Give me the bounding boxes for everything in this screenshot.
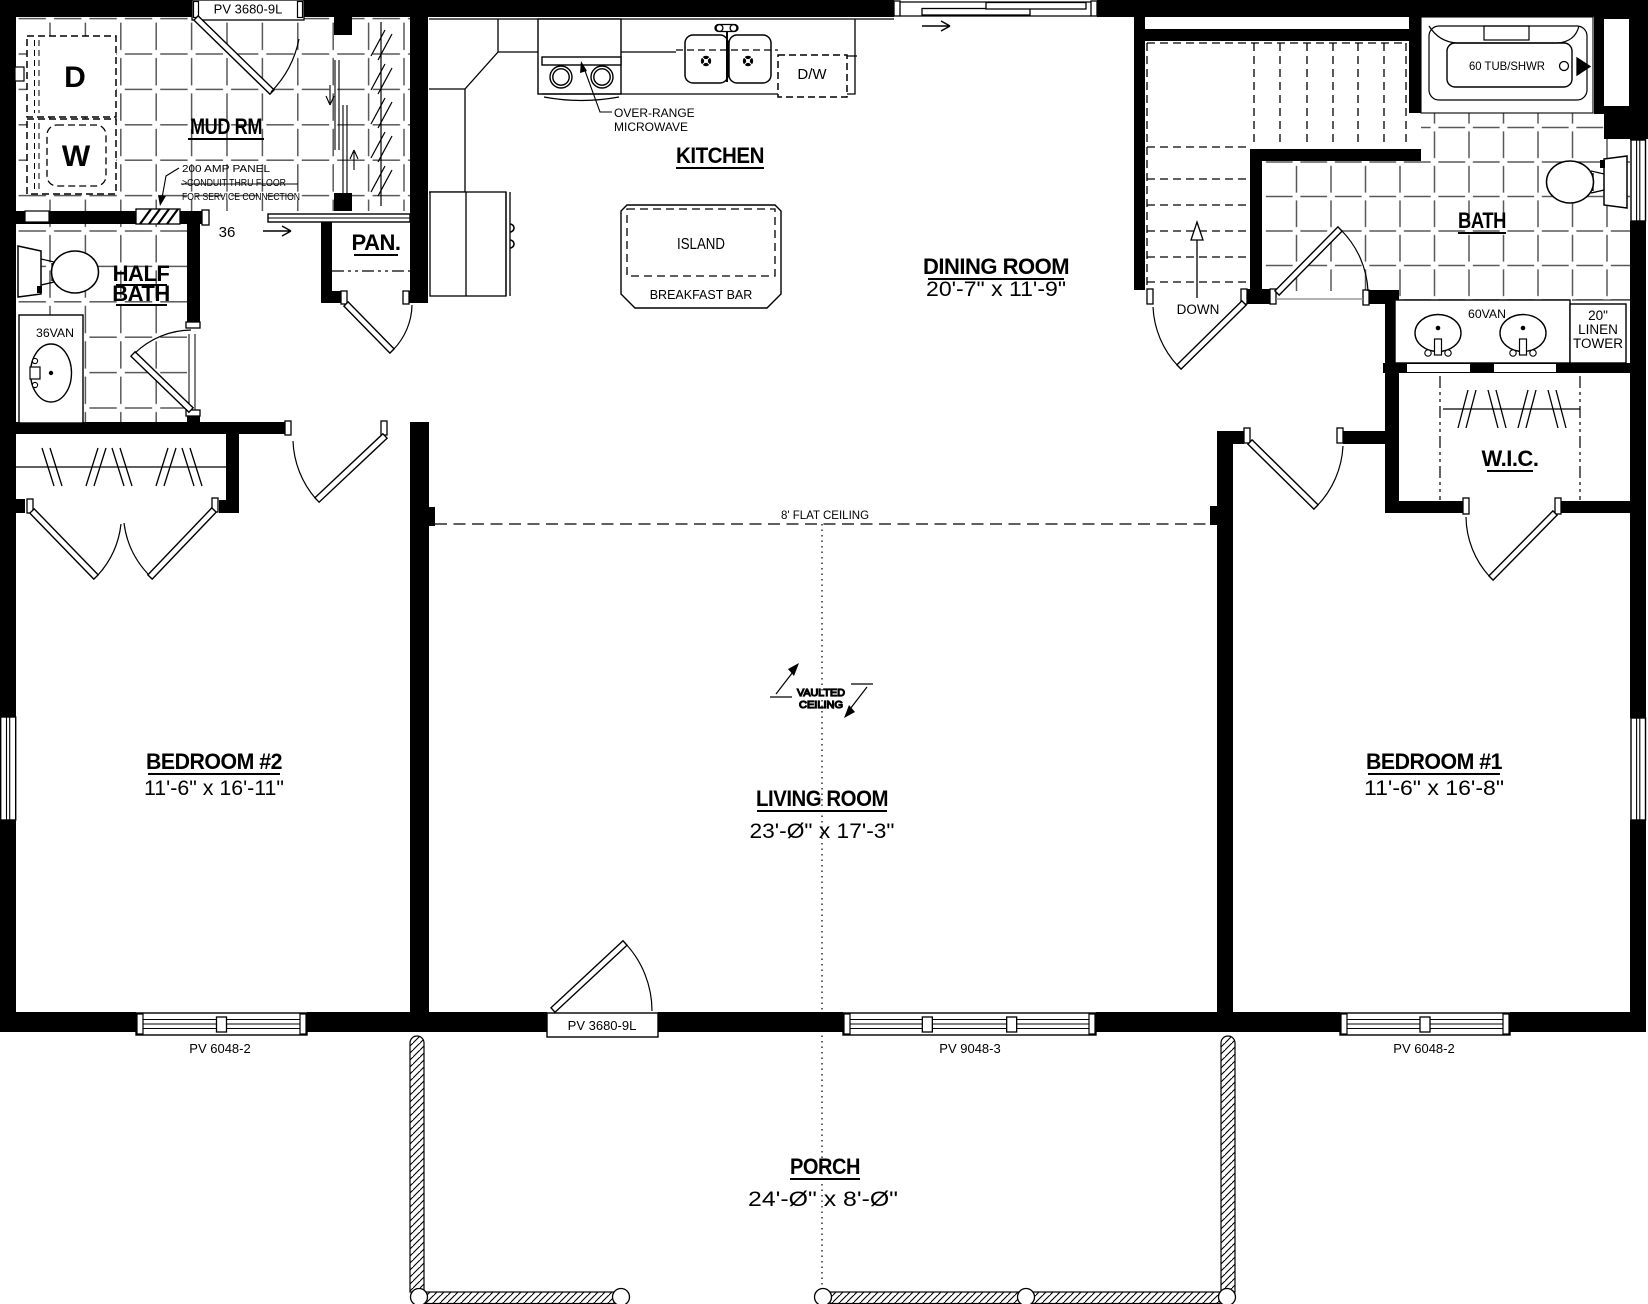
svg-text:PV 9048-3: PV 9048-3	[939, 1041, 1000, 1056]
svg-text:200 AMP PANEL: 200 AMP PANEL	[182, 163, 270, 175]
svg-text:36: 36	[219, 224, 236, 241]
svg-text:D/W: D/W	[797, 66, 827, 83]
svg-text:11'-6" x 16'-8": 11'-6" x 16'-8"	[1364, 776, 1504, 800]
svg-text:FOR SERVICE CONNECTION: FOR SERVICE CONNECTION	[182, 191, 300, 203]
svg-text:VAULTED: VAULTED	[797, 687, 845, 699]
svg-text:MUD RM: MUD RM	[190, 114, 262, 139]
svg-text:LIVING ROOM: LIVING ROOM	[756, 786, 888, 811]
svg-text:PV 3680-9L: PV 3680-9L	[568, 1018, 637, 1033]
svg-text:11'-6" x 16'-11": 11'-6" x 16'-11"	[144, 776, 284, 800]
svg-text:20": 20"	[1588, 308, 1608, 323]
svg-text:MICROWAVE: MICROWAVE	[614, 120, 688, 134]
svg-text:BEDROOM #2: BEDROOM #2	[146, 749, 282, 774]
svg-text:BEDROOM #1: BEDROOM #1	[1366, 749, 1502, 774]
svg-text:ISLAND: ISLAND	[677, 236, 725, 253]
svg-text:W.I.C.: W.I.C.	[1482, 446, 1539, 471]
svg-text:24'-Ø" x 8'-Ø": 24'-Ø" x 8'-Ø"	[748, 1187, 898, 1211]
svg-text:20'-7" x 11'-9": 20'-7" x 11'-9"	[926, 277, 1066, 301]
svg-text:>CONDUIT THRU FLOOR: >CONDUIT THRU FLOOR	[182, 177, 286, 189]
svg-text:TOWER: TOWER	[1573, 336, 1623, 351]
svg-text:BREAKFAST BAR: BREAKFAST BAR	[650, 288, 753, 302]
svg-text:CEILING: CEILING	[799, 699, 843, 711]
svg-text:PORCH: PORCH	[790, 1154, 860, 1179]
svg-text:36VAN: 36VAN	[36, 326, 74, 340]
svg-text:OVER-RANGE: OVER-RANGE	[614, 106, 695, 120]
svg-text:DOWN: DOWN	[1177, 302, 1220, 317]
svg-text:60VAN: 60VAN	[1468, 307, 1506, 321]
svg-text:W: W	[62, 140, 91, 173]
svg-text:60 TUB/SHWR: 60 TUB/SHWR	[1469, 59, 1545, 73]
svg-text:PAN.: PAN.	[352, 230, 401, 255]
svg-text:LINEN: LINEN	[1578, 322, 1618, 337]
svg-text:BATH: BATH	[112, 281, 169, 306]
svg-text:8' FLAT CEILING: 8' FLAT CEILING	[781, 510, 869, 522]
svg-text:PV 3680-9L: PV 3680-9L	[214, 2, 283, 17]
svg-text:DINING ROOM: DINING ROOM	[923, 254, 1069, 279]
svg-text:23'-Ø" x 17'-3": 23'-Ø" x 17'-3"	[750, 819, 895, 843]
svg-text:PV 6048-2: PV 6048-2	[1393, 1041, 1454, 1056]
svg-text:PV 6048-2: PV 6048-2	[189, 1041, 250, 1056]
svg-text:KITCHEN: KITCHEN	[676, 143, 764, 168]
svg-text:BATH: BATH	[1458, 208, 1506, 233]
svg-text:D: D	[64, 61, 86, 94]
